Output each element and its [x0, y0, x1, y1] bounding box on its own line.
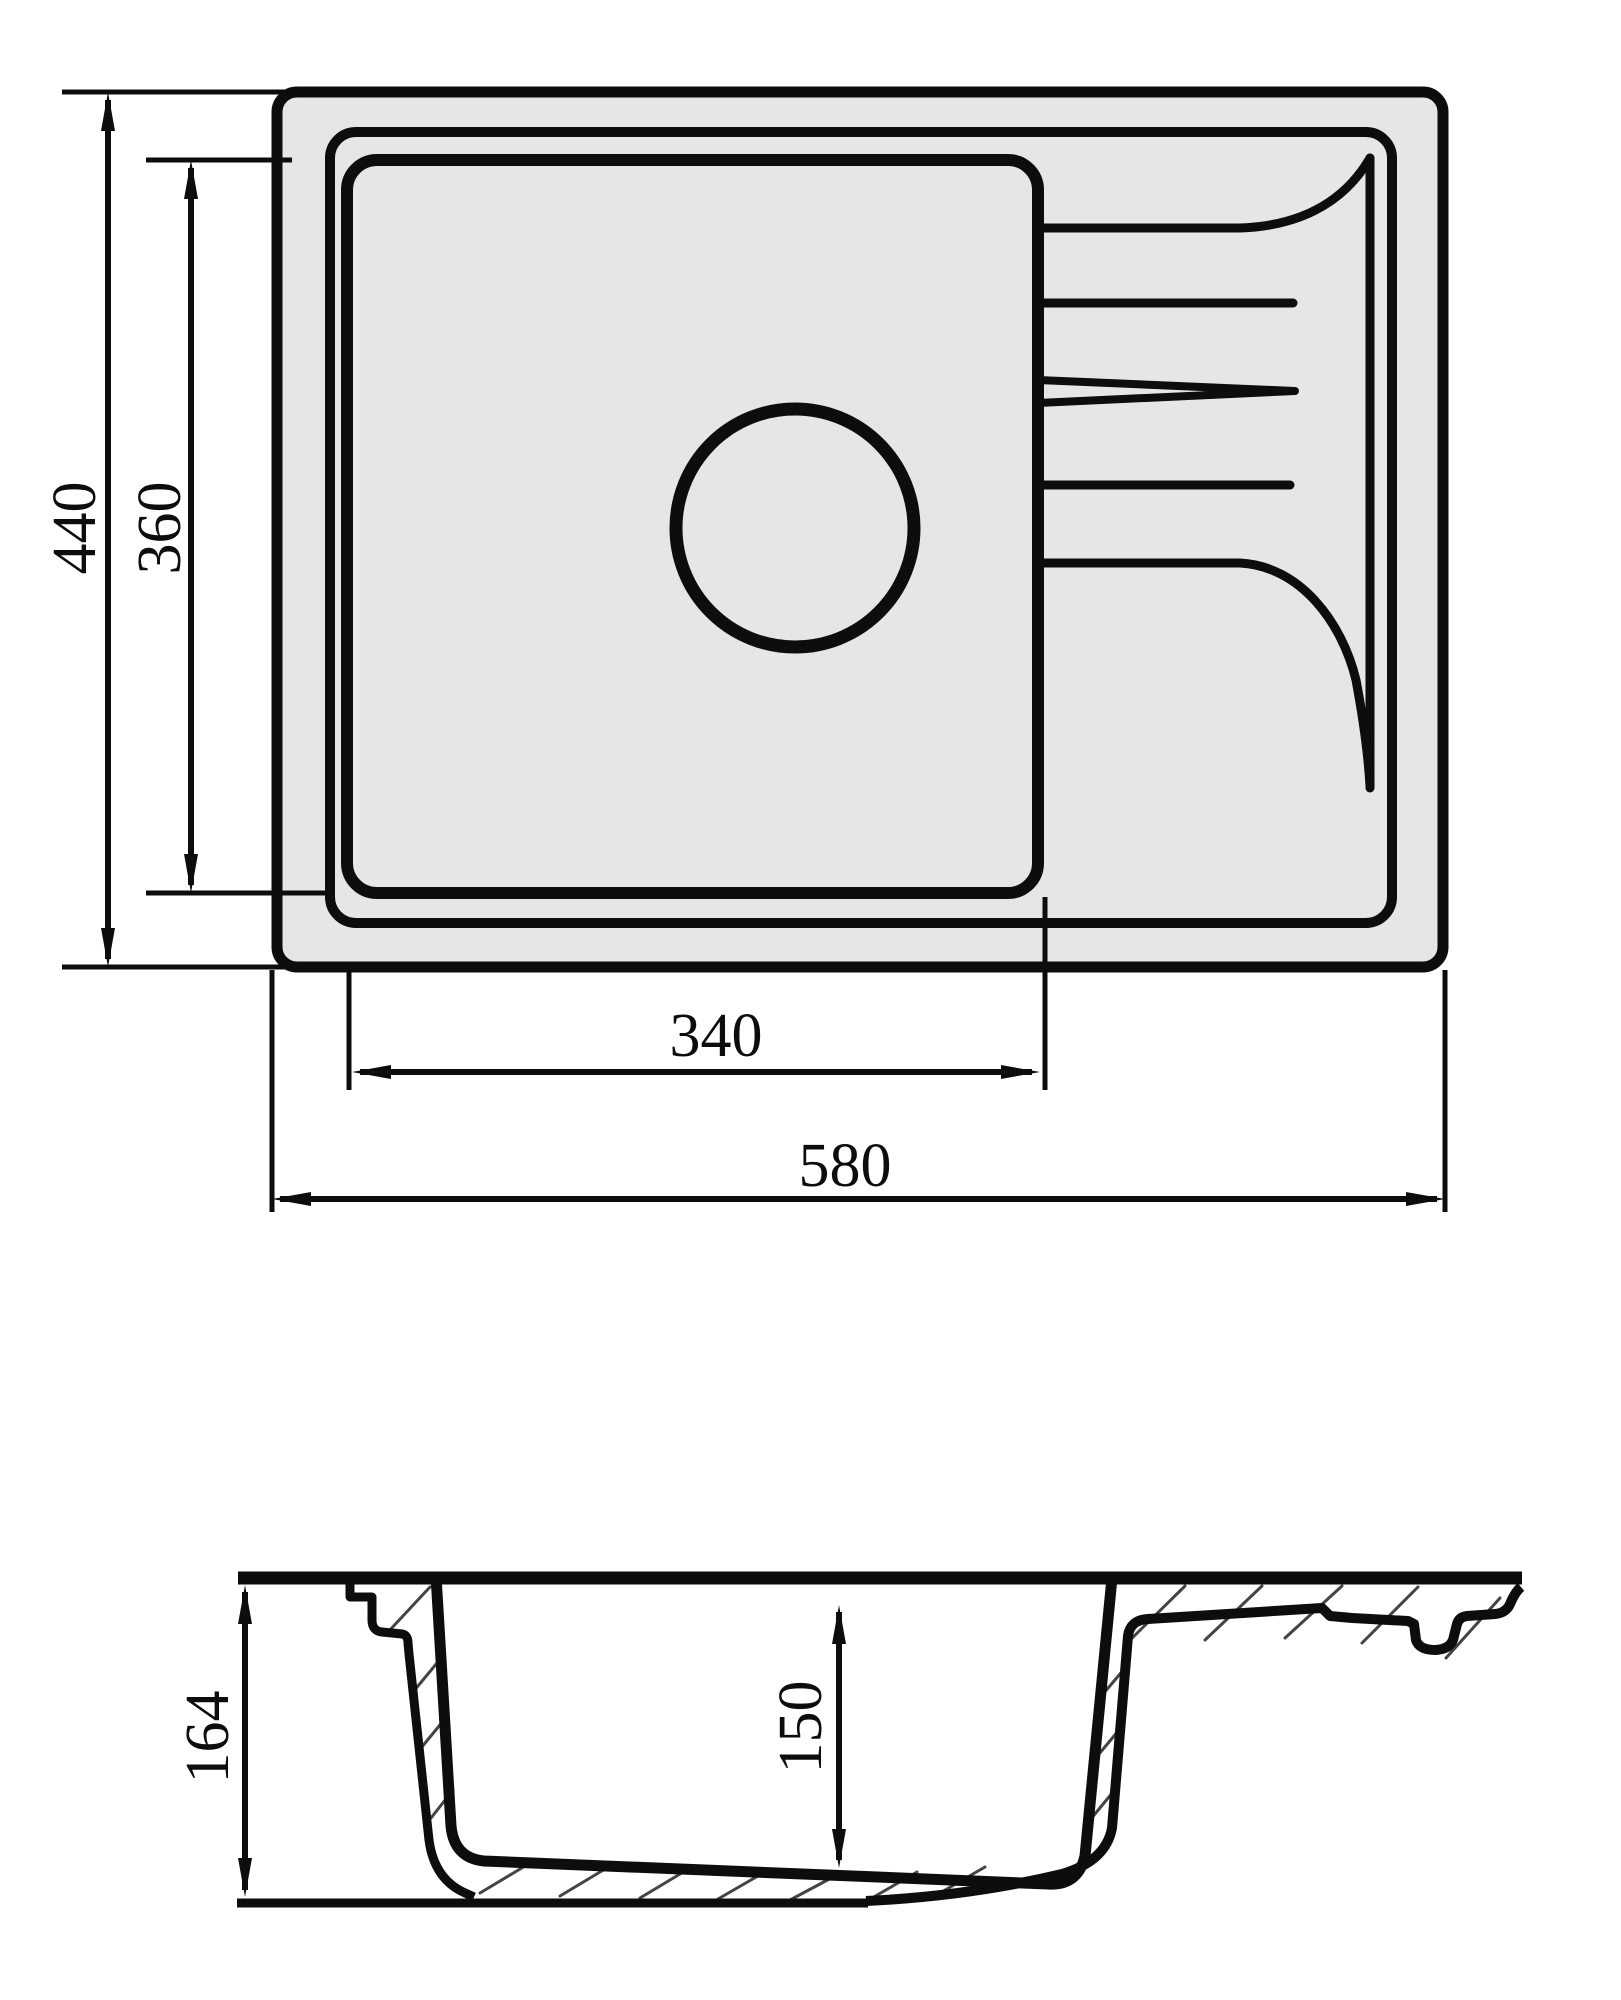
dimension-label-150: 150	[767, 1681, 835, 1774]
technical-drawing-canvas: 440 360 340 580	[0, 0, 1621, 2000]
technical-drawing-page: 440 360 340 580	[0, 0, 1621, 2000]
section-hatching	[388, 1586, 1500, 1900]
dimension-label-360: 360	[126, 482, 194, 575]
arrowhead-left-icon	[272, 1192, 311, 1206]
hatch-line	[480, 1866, 525, 1893]
dimension-label-340: 340	[670, 1002, 763, 1070]
dimension-label-440: 440	[41, 482, 109, 575]
dimension-label-580: 580	[799, 1132, 892, 1200]
top-view: 440 360 340 580	[41, 92, 1445, 1212]
section-view: 164 150	[174, 1574, 1522, 1903]
section-rim-underside-profile	[866, 1587, 1521, 1901]
arrowhead-down-icon	[832, 1829, 846, 1868]
arrowhead-up-icon	[238, 1585, 252, 1624]
arrowhead-up-icon	[101, 92, 115, 131]
hatch-line	[640, 1871, 685, 1898]
arrowhead-right-icon	[1406, 1192, 1445, 1206]
arrowhead-down-icon	[184, 854, 198, 893]
dimension-overall-width: 580	[272, 970, 1445, 1212]
arrowhead-up-icon	[832, 1605, 846, 1644]
hatch-line	[388, 1587, 430, 1632]
dimension-overall-height: 164	[174, 1585, 252, 1897]
arrowhead-down-icon	[101, 928, 115, 967]
arrowhead-up-icon	[184, 160, 198, 199]
dimension-label-164: 164	[174, 1691, 242, 1784]
hatch-line	[560, 1869, 605, 1896]
arrowhead-down-icon	[238, 1858, 252, 1897]
dimension-bowl-inner-depth: 150	[767, 1605, 846, 1868]
arrowhead-right-icon	[1001, 1065, 1040, 1079]
arrowhead-left-icon	[352, 1065, 391, 1079]
